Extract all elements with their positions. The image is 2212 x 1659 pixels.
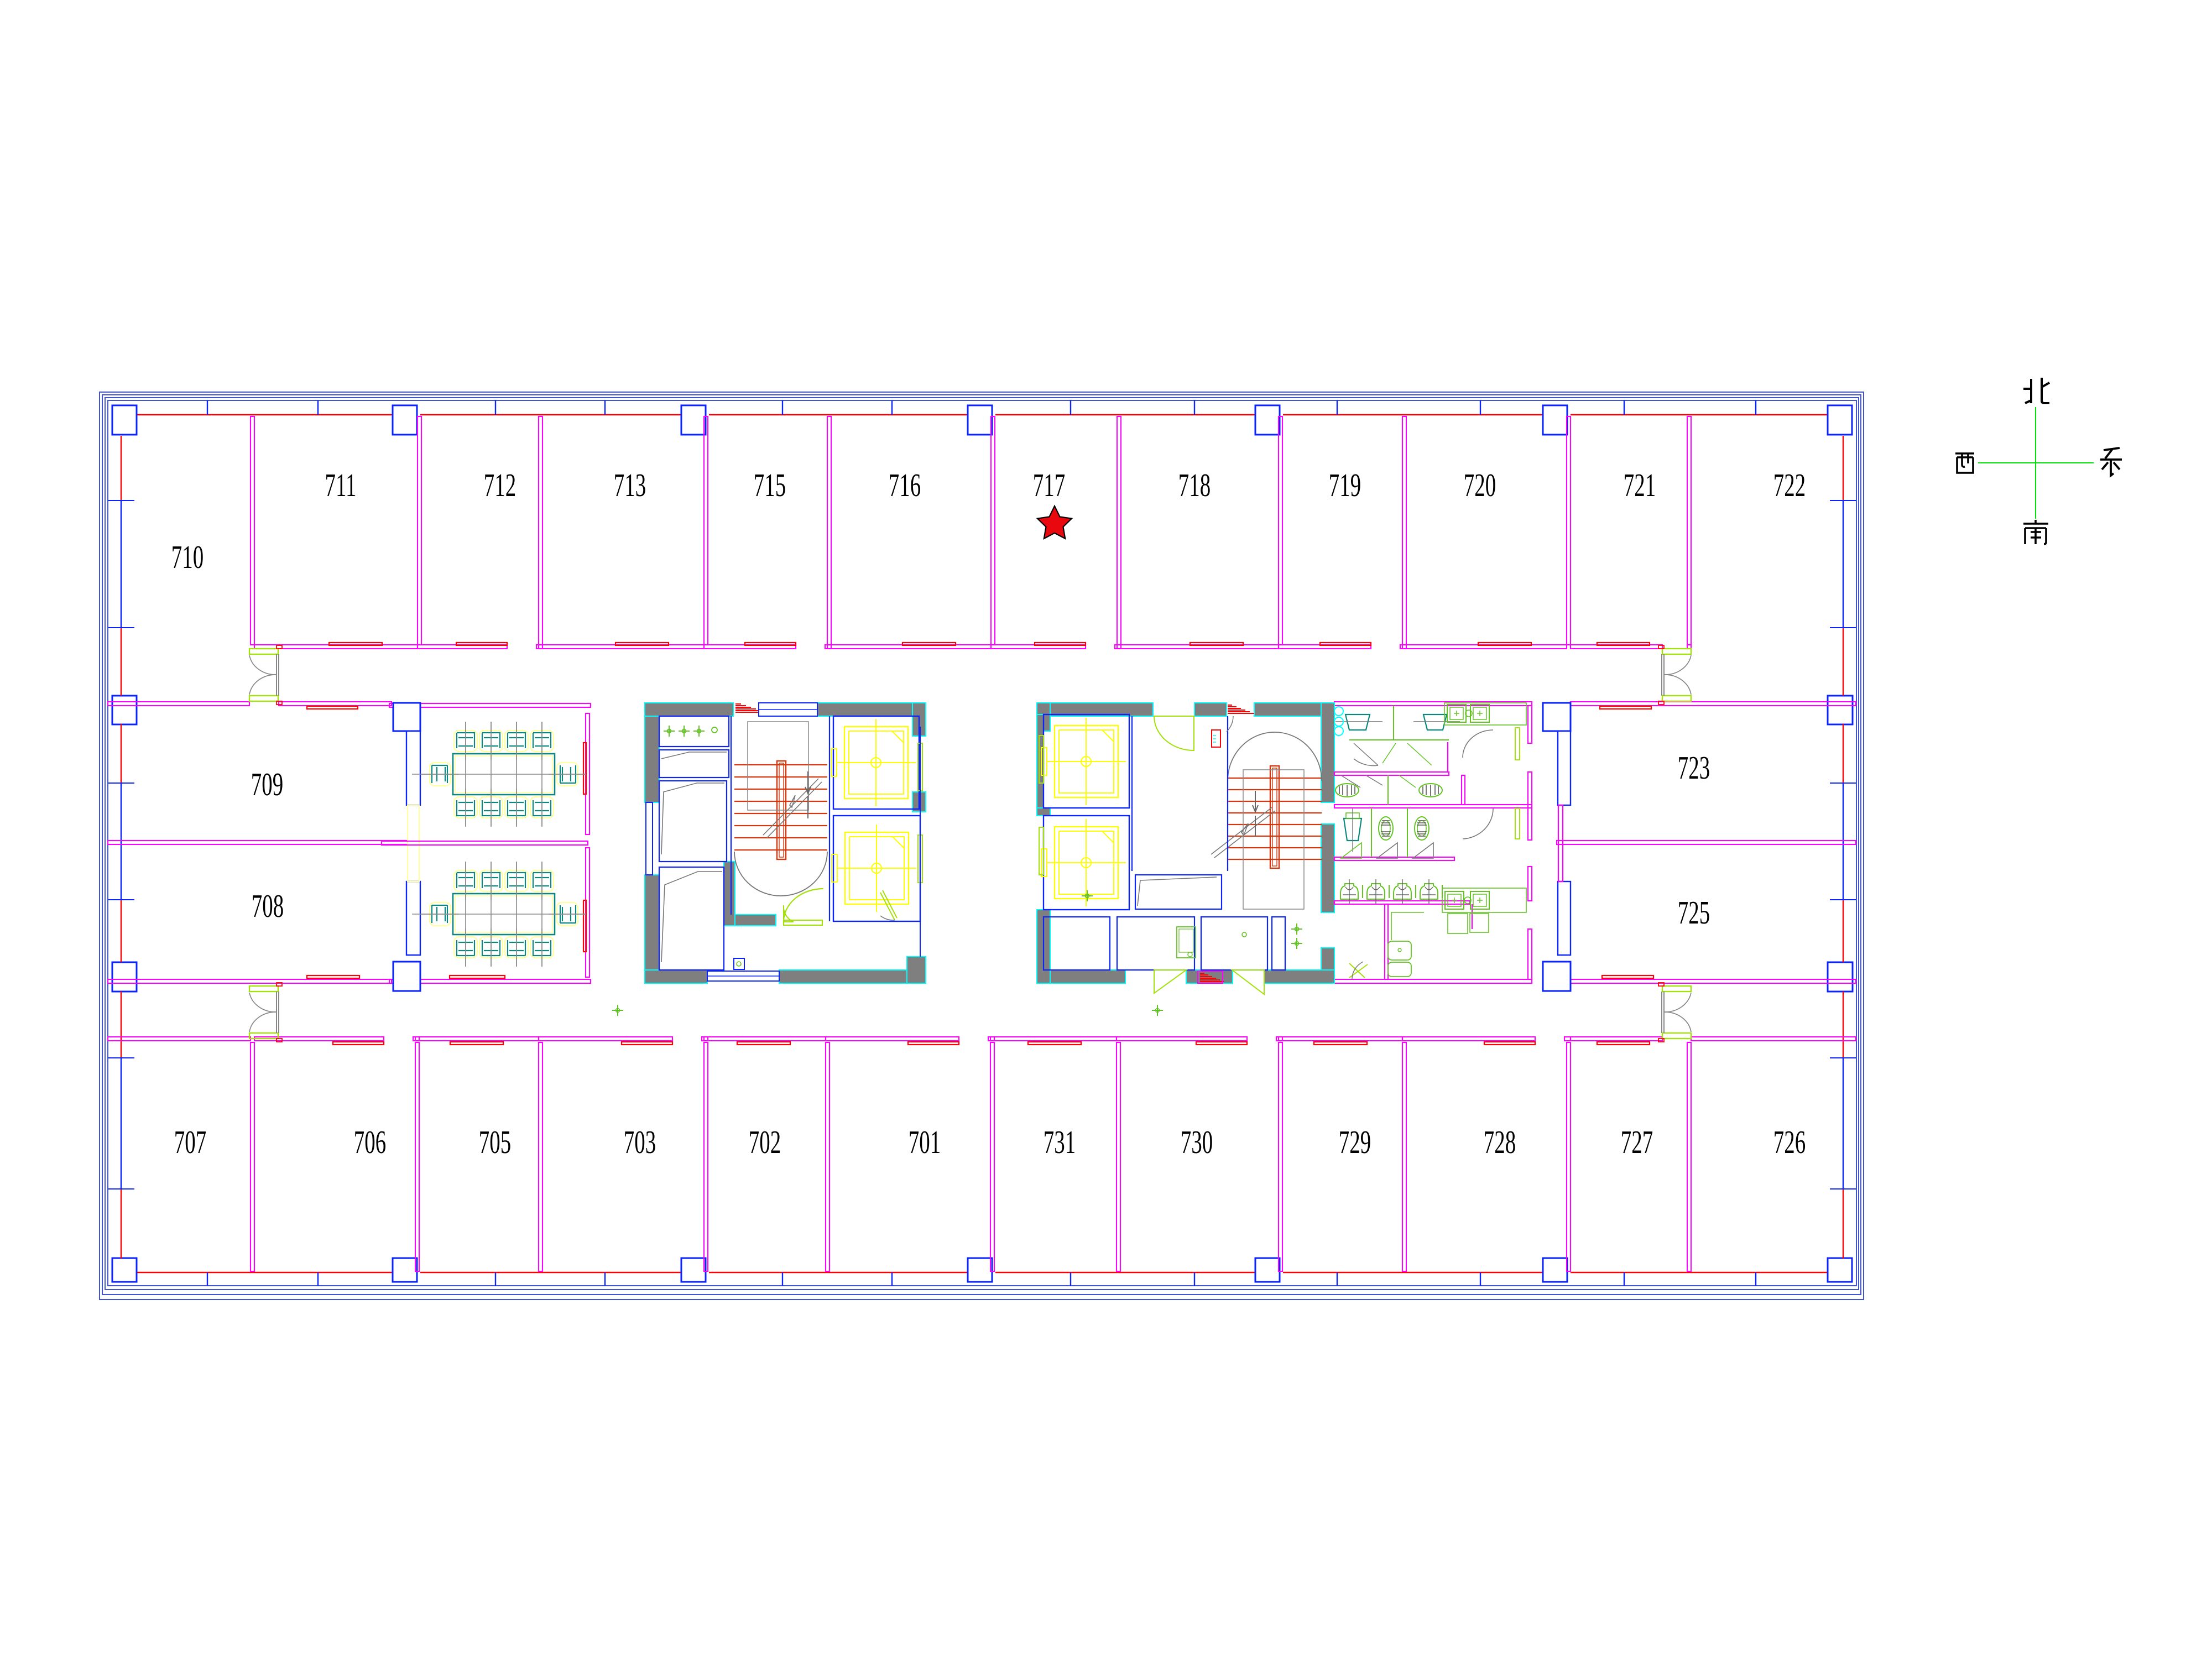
svg-text:729: 729 (1339, 1124, 1371, 1160)
svg-text:703: 703 (624, 1124, 656, 1160)
svg-text:713: 713 (614, 467, 646, 503)
svg-text:711: 711 (325, 467, 357, 503)
svg-text:715: 715 (754, 467, 786, 503)
svg-text:706: 706 (354, 1124, 386, 1160)
svg-text:725: 725 (1678, 894, 1710, 931)
svg-text:718: 718 (1178, 467, 1211, 503)
svg-text:722: 722 (1773, 467, 1806, 503)
svg-text:710: 710 (171, 539, 204, 575)
svg-text:717: 717 (1033, 467, 1065, 503)
svg-text:719: 719 (1329, 467, 1361, 503)
svg-text:728: 728 (1484, 1124, 1516, 1160)
svg-text:702: 702 (749, 1124, 781, 1160)
svg-text:731: 731 (1044, 1124, 1076, 1160)
svg-text:727: 727 (1621, 1124, 1653, 1160)
svg-text:707: 707 (174, 1124, 206, 1160)
svg-text:720: 720 (1464, 467, 1496, 503)
svg-text:721: 721 (1624, 467, 1656, 503)
svg-text:723: 723 (1678, 749, 1710, 786)
svg-text:726: 726 (1773, 1124, 1806, 1160)
svg-text:701: 701 (909, 1124, 941, 1160)
svg-text:705: 705 (479, 1124, 511, 1160)
svg-text:716: 716 (889, 467, 921, 503)
svg-text:708: 708 (252, 888, 284, 924)
svg-text:709: 709 (251, 766, 283, 802)
svg-text:712: 712 (484, 467, 516, 503)
svg-text:730: 730 (1181, 1124, 1213, 1160)
